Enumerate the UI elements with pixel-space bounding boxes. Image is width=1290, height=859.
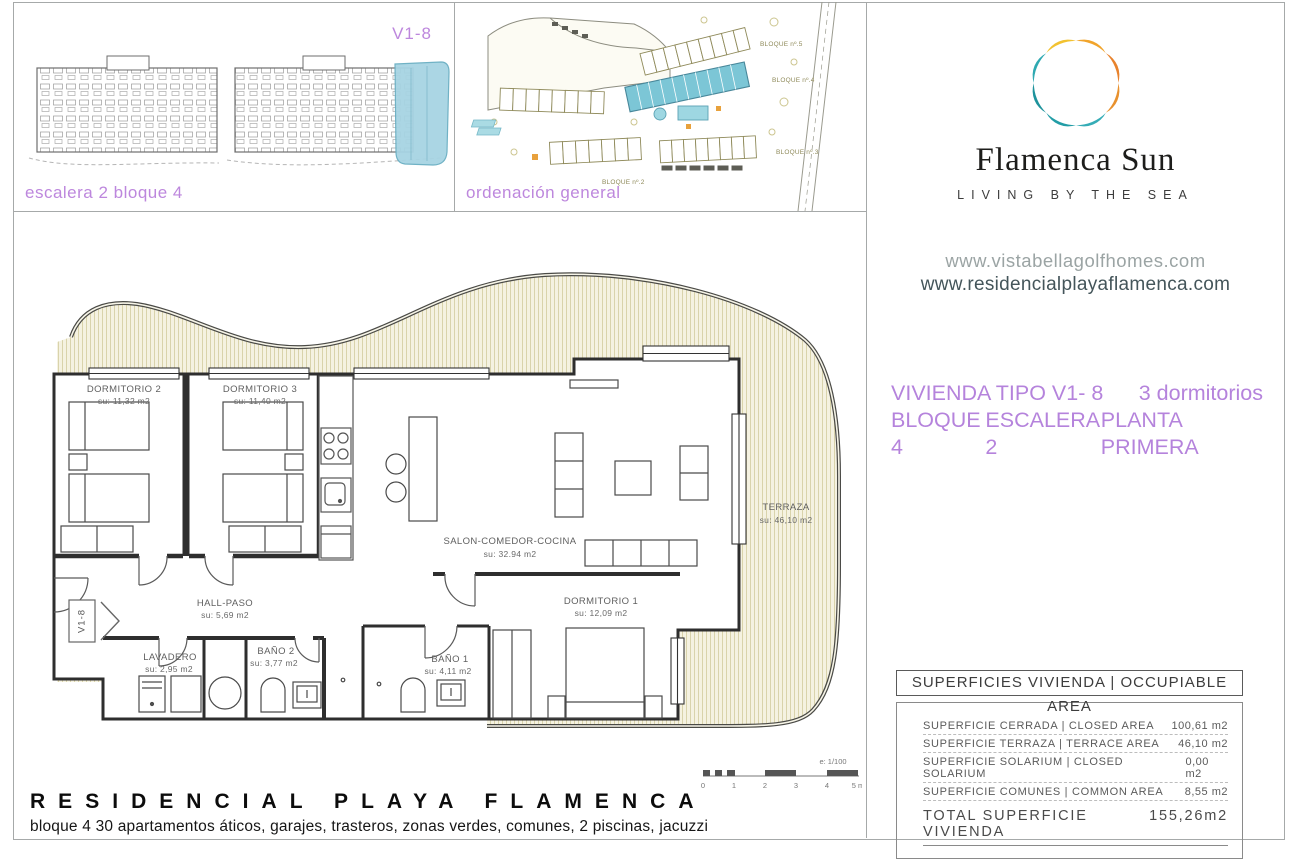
entry-marker-label: V1-8 xyxy=(77,609,88,633)
building-bloque3 xyxy=(659,136,756,163)
scale-tick: 0 xyxy=(701,781,705,790)
nightstand-icon xyxy=(548,696,565,718)
bed-icon xyxy=(223,474,303,522)
fridge-icon xyxy=(321,526,351,558)
scale-tick: 1 xyxy=(732,781,736,790)
room-label: TERRAZA xyxy=(762,502,809,513)
row-value: 46,10 m2 xyxy=(1178,738,1228,750)
parking-row xyxy=(662,166,742,170)
scale-label: e: 1/100 xyxy=(819,757,846,766)
scale-tick: 4 xyxy=(825,781,829,790)
bed-icon xyxy=(223,402,303,450)
unit-type-label: VIVIENDA TIPO V1- 8 xyxy=(891,380,1103,407)
bloque5-label: BLOQUE nº.5 xyxy=(760,41,803,48)
table-row: SUPERFICIE SOLARIUM | CLOSED SOLARIUM 0,… xyxy=(923,753,1228,783)
room-label: SALON-COMEDOR-COCINA xyxy=(443,536,576,547)
table-total-row: TOTAL SUPERFICIE VIVIENDA 155,26m2 xyxy=(923,801,1228,846)
elevation-drawing xyxy=(13,2,454,211)
pinwheel-icon xyxy=(1024,31,1127,134)
unit-code-label: V1-8 xyxy=(392,24,432,44)
areas-table-body: SUPERFICIE CERRADA | CLOSED AREA 100,61 … xyxy=(896,702,1243,859)
table-row: SUPERFICIE CERRADA | CLOSED AREA 100,61 … xyxy=(923,717,1228,735)
room-area: su: 11,32 m2 xyxy=(98,396,150,406)
highlighted-unit xyxy=(395,62,449,165)
scale-tick: 3 xyxy=(794,781,798,790)
room-area: su: 12,09 m2 xyxy=(575,608,628,618)
areas-table: SUPERFICIES VIVIENDA | OCCUPIABLE AREA S… xyxy=(896,670,1243,859)
dorm3-furniture xyxy=(223,402,303,552)
siteplan-caption: ordenación general xyxy=(466,183,621,203)
room-label: DORMITORIO 3 xyxy=(223,384,297,395)
pool-central xyxy=(654,106,721,129)
room-label: LAVADERO xyxy=(143,652,197,663)
row-value: 0,00 m2 xyxy=(1186,756,1229,780)
amenity-dot xyxy=(532,154,538,160)
room-area: su: 46,10 m2 xyxy=(760,515,813,525)
building-row-left xyxy=(500,88,605,114)
footer-title: RESIDENCIAL PLAYA FLAMENCA xyxy=(30,790,707,814)
room-area: su: 32.94 m2 xyxy=(484,549,537,559)
elevation-panel: V1-8 escalera 2 bloque 4 xyxy=(13,2,455,211)
dryer-icon xyxy=(171,676,201,712)
url-residencial[interactable]: www.residencialplayaflamenca.com xyxy=(867,273,1284,297)
table-row: SUPERFICIE COMUNES | COMMON AREA 8,55 m2 xyxy=(923,783,1228,801)
website-urls: www.vistabellagolfhomes.com www.residenc… xyxy=(867,249,1284,297)
coffee-table-icon xyxy=(615,461,651,495)
brand-name: Flamenca Sun xyxy=(867,142,1284,179)
unit-header: VIVIENDA TIPO V1- 8 3 dormitorios BLOQUE… xyxy=(891,380,1263,461)
table-row: SUPERFICIE TERRAZA | TERRACE AREA 46,10 … xyxy=(923,735,1228,753)
row-label: SUPERFICIE COMUNES | COMMON AREA xyxy=(923,786,1163,798)
row-label: SUPERFICIE TERRAZA | TERRACE AREA xyxy=(923,738,1159,750)
elevation-caption: escalera 2 bloque 4 xyxy=(25,183,183,203)
room-area: su: 4,11 m2 xyxy=(424,666,471,676)
row-value: 100,61 m2 xyxy=(1172,720,1228,732)
nightstand-icon xyxy=(285,454,303,470)
row-label: SUPERFICIE CERRADA | CLOSED AREA xyxy=(923,720,1154,732)
island-icon xyxy=(409,417,437,521)
toilet-icon xyxy=(401,678,425,712)
row-value: 8,55 m2 xyxy=(1185,786,1228,798)
floorplan-drawing: V1-8 DORMITORIO 2 su: 11,32 m2 DORMITORI… xyxy=(13,212,862,795)
road xyxy=(798,2,836,211)
unit-escalera-label: ESCALERA 2 xyxy=(985,407,1100,461)
areas-table-title: SUPERFICIES VIVIENDA | OCCUPIABLE AREA xyxy=(896,670,1243,696)
scale-bar: e: 1/100 0 1 2 3 4 5 m xyxy=(701,757,862,790)
flamenca-sun-logo-icon xyxy=(1021,28,1131,138)
siteplan-drawing: BLOQUE nº.5 BLOQUE nº.4 BLOQUE nº.3 BLOQ… xyxy=(454,2,865,211)
building-bloque2 xyxy=(549,138,641,165)
room-area: su: 3,77 m2 xyxy=(250,658,298,668)
unit-bedrooms-label: 3 dormitorios xyxy=(1139,380,1263,407)
bloque3-label: BLOQUE nº.3 xyxy=(776,149,819,156)
total-value: 155,26m2 xyxy=(1149,808,1228,840)
room-label: DORMITORIO 1 xyxy=(564,596,638,607)
nightstand-icon xyxy=(69,454,87,470)
room-label: DORMITORIO 2 xyxy=(87,384,161,395)
brand-tagline: LIVING BY THE SEA xyxy=(867,188,1284,202)
scale-tick: 2 xyxy=(763,781,767,790)
bed-icon xyxy=(69,474,149,522)
footer-subtitle: bloque 4 30 apartamentos áticos, garajes… xyxy=(30,818,708,836)
building-1 xyxy=(29,56,219,165)
url-vistabella[interactable]: www.vistabellagolfhomes.com xyxy=(867,249,1284,273)
room-label: BAÑO 2 xyxy=(257,646,294,657)
room-label: BAÑO 1 xyxy=(431,654,468,665)
sidebar: Flamenca Sun LIVING BY THE SEA www.vista… xyxy=(866,2,1284,838)
room-area: su: 5,69 m2 xyxy=(201,610,249,620)
sofa-icon xyxy=(555,433,583,517)
bloque4-label: BLOQUE nº.4 xyxy=(772,77,815,84)
wet-rooms-fixtures xyxy=(139,676,465,712)
scale-tick: 5 m xyxy=(852,781,862,790)
stove-icon xyxy=(321,428,351,464)
unit-bloque-label: BLOQUE 4 xyxy=(891,407,985,461)
unit-planta-label: PLANTA PRIMERA xyxy=(1101,407,1263,461)
room-label: HALL-PASO xyxy=(197,598,253,609)
row-label: SUPERFICIE SOLARIUM | CLOSED SOLARIUM xyxy=(923,756,1186,780)
bed-icon xyxy=(566,628,644,718)
siteplan-panel: BLOQUE nº.5 BLOQUE nº.4 BLOQUE nº.3 BLOQ… xyxy=(454,2,865,211)
room-area: su: 11,40 m2 xyxy=(234,396,286,406)
sideboard-icon xyxy=(570,380,618,388)
kitchen xyxy=(319,376,353,560)
bed-icon xyxy=(69,402,149,450)
nightstand-icon xyxy=(645,696,662,718)
dorm1-furniture xyxy=(493,628,662,718)
room-area: su: 2,95 m2 xyxy=(145,664,193,674)
total-label: TOTAL SUPERFICIE VIVIENDA xyxy=(923,808,1149,840)
toilet-icon xyxy=(261,678,285,712)
